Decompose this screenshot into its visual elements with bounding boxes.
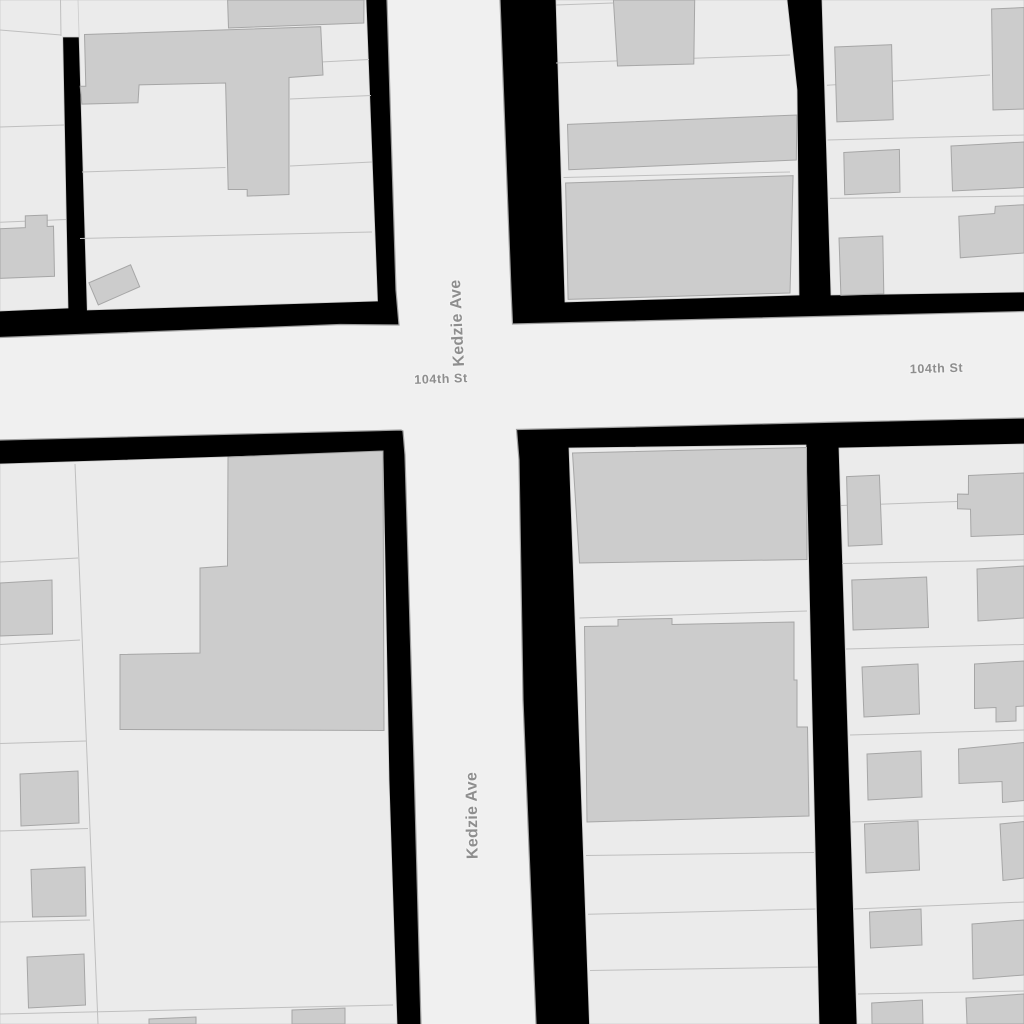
svg-text:Kedzie Ave: Kedzie Ave <box>463 772 481 859</box>
svg-text:104th St: 104th St <box>414 371 468 387</box>
svg-text:104th St: 104th St <box>910 361 964 376</box>
